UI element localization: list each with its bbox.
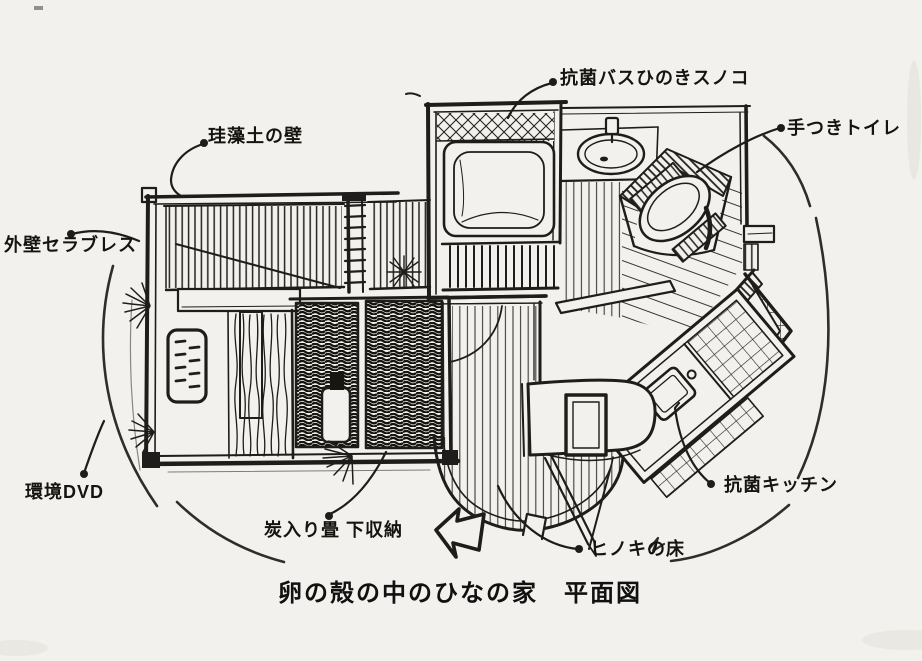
dvd-unit xyxy=(168,330,206,402)
floor-plan-sketch xyxy=(0,0,922,661)
label-storage: 炭入り畳 下収納 xyxy=(264,521,403,539)
label-exterior-wall: 外壁セラブレス xyxy=(4,236,137,254)
page-title: 卵の殻の中のひなの家 平面図 xyxy=(278,582,642,606)
label-diatomite-wall: 珪藻土の壁 xyxy=(208,127,303,145)
charcoal-storage-panels xyxy=(296,301,442,448)
label-dvd: 環境DVD xyxy=(25,483,104,501)
bath-rail-slats xyxy=(442,242,558,290)
entrance-arrow-icon xyxy=(436,509,484,557)
bathtub xyxy=(444,142,554,236)
label-kitchen: 抗菌キッチン xyxy=(724,476,838,494)
ladder xyxy=(342,193,366,292)
bath-slatted-duckboard xyxy=(437,113,554,141)
tatami-slat-panel xyxy=(164,204,344,290)
label-toilet: 手つきトイレ xyxy=(787,119,901,137)
floor-plan-page: 抗菌バスひのきスノコ 手つきトイレ 珪藻土の壁 外壁セラブレス 環境DVD 炭入… xyxy=(0,0,922,661)
label-hinoki-floor: ヒノキの床 xyxy=(590,540,685,558)
label-bath: 抗菌バスひのきスノコ xyxy=(560,69,749,87)
